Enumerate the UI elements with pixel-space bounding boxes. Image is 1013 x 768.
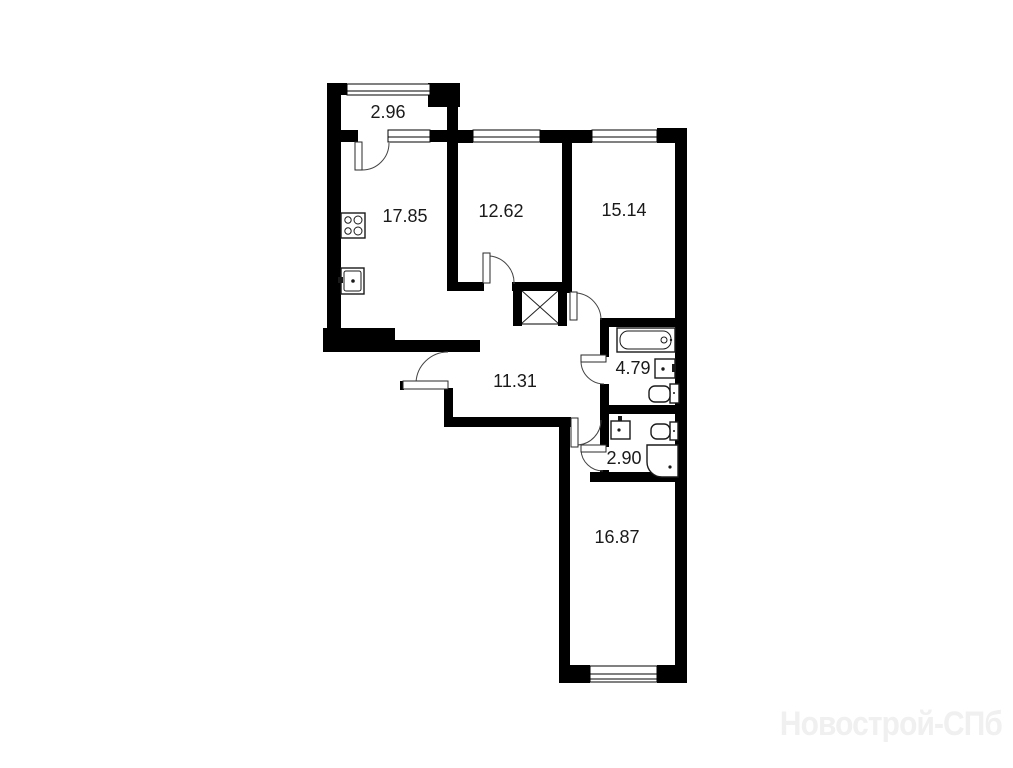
ventilation-shaft-icon bbox=[521, 290, 559, 324]
bathroom-washbasin-icon bbox=[655, 359, 676, 378]
wall-kitchen-bottom-exterior bbox=[323, 328, 395, 352]
window-room3-icon bbox=[590, 666, 657, 682]
wall-balcony-top-left bbox=[327, 83, 347, 95]
door-room2 bbox=[570, 292, 601, 320]
wall-room3-left bbox=[559, 417, 570, 672]
wall-bathroom-wc-divider bbox=[600, 405, 685, 414]
room-label-bathroom: 4.79 bbox=[615, 358, 650, 378]
window-room2-icon bbox=[592, 130, 657, 142]
door-entrance bbox=[403, 352, 448, 389]
wall-left-exterior bbox=[327, 83, 341, 352]
wall-balcony-corner bbox=[428, 83, 460, 107]
wall-room1-room2 bbox=[562, 142, 572, 293]
wall-kitchen-room1 bbox=[447, 105, 458, 285]
kitchen-sink-icon bbox=[338, 268, 364, 294]
floor-plan-image: 2.96 17.85 12.62 15.14 11.31 4.79 2.90 1… bbox=[0, 0, 1013, 768]
room-label-hallway: 11.31 bbox=[493, 371, 537, 391]
room-label-room2: 15.14 bbox=[601, 200, 646, 220]
wall-entry-side bbox=[444, 388, 453, 418]
room-label-balcony: 2.96 bbox=[370, 102, 405, 122]
bathroom-toilet-icon bbox=[649, 384, 679, 403]
wall-wc-left bbox=[600, 414, 609, 447]
stove-icon bbox=[341, 213, 365, 238]
wall-balcony-divider-right bbox=[430, 130, 448, 142]
door-bathroom bbox=[581, 355, 606, 384]
wall-bathroom-left-upper bbox=[600, 318, 609, 357]
wall-shaft-left bbox=[513, 282, 522, 326]
door-room3 bbox=[571, 418, 601, 447]
wall-room3-bottom-right bbox=[657, 665, 687, 683]
room-label-kitchen-living: 17.85 bbox=[382, 206, 427, 226]
window-balcony-icon bbox=[347, 84, 430, 95]
room-label-wc: 2.90 bbox=[606, 448, 641, 468]
wall-hallway-bottom bbox=[444, 417, 571, 427]
wall-top-seg2 bbox=[540, 130, 592, 143]
window-balcony-kitchen-icon bbox=[388, 130, 430, 142]
wall-balcony-divider-left bbox=[341, 130, 358, 142]
window-room1-icon bbox=[473, 130, 540, 142]
shower-cabin-icon bbox=[647, 445, 678, 477]
door-room1 bbox=[483, 253, 514, 284]
wall-room1-bottom-left bbox=[447, 282, 484, 291]
wall-room3-bottom-left bbox=[559, 665, 590, 683]
room-label-room3: 16.87 bbox=[594, 527, 639, 547]
wc-toilet-icon bbox=[651, 422, 678, 440]
floor-plan-svg: 2.96 17.85 12.62 15.14 11.31 4.79 2.90 1… bbox=[0, 0, 1013, 768]
watermark: Новострой-СПб bbox=[780, 704, 1002, 742]
wall-bathroom-top bbox=[600, 318, 675, 327]
room-label-room1: 12.62 bbox=[478, 201, 523, 221]
wall-top-seg1 bbox=[458, 130, 473, 143]
bathtub-icon bbox=[617, 328, 675, 352]
wc-washbasin-icon bbox=[611, 416, 630, 439]
door-wc bbox=[581, 445, 606, 471]
wall-shaft-right bbox=[558, 282, 567, 326]
wall-kitchen-bottom-interior bbox=[395, 340, 480, 352]
door-balcony bbox=[355, 142, 389, 170]
